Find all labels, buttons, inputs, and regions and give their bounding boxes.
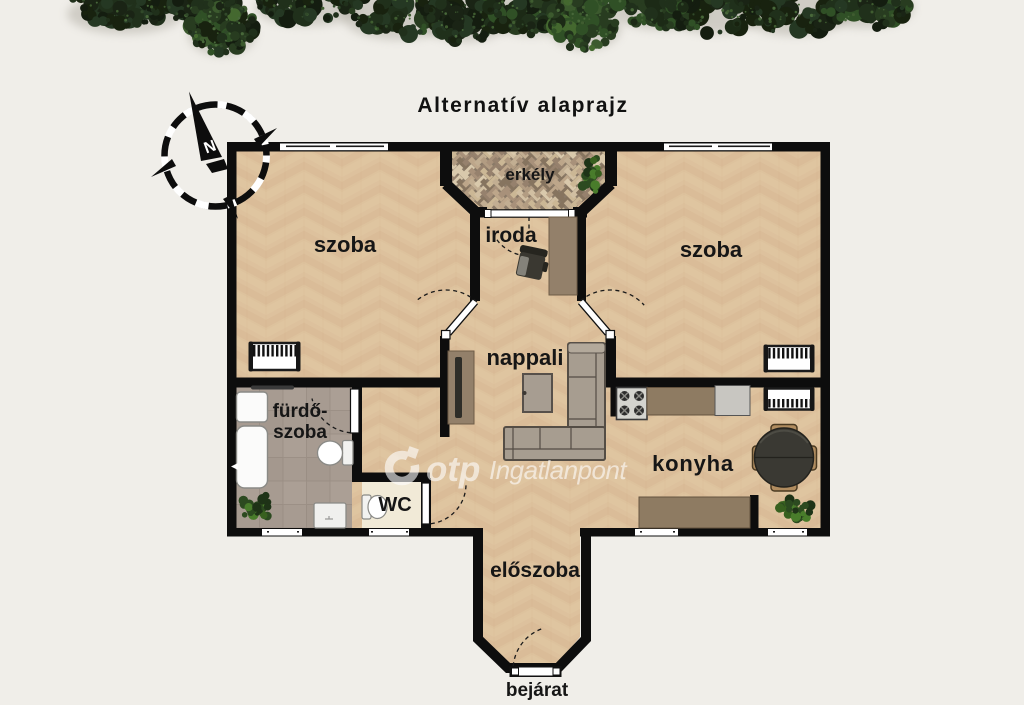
svg-text:WC: WC — [378, 494, 411, 516]
svg-text:iroda: iroda — [485, 224, 537, 247]
svg-text:erkély: erkély — [505, 165, 555, 184]
svg-text:bejárat: bejárat — [506, 680, 569, 701]
svg-text:előszoba: előszoba — [490, 559, 580, 582]
svg-text:szoba: szoba — [680, 237, 743, 262]
svg-text:Alternatív alaprajz: Alternatív alaprajz — [417, 94, 628, 117]
svg-text:Ingatlanpont: Ingatlanpont — [489, 455, 628, 485]
svg-text:otp: otp — [426, 450, 480, 489]
svg-text:fürdő-: fürdő- — [273, 401, 328, 422]
svg-text:nappali: nappali — [486, 345, 563, 370]
svg-text:szoba: szoba — [314, 232, 377, 257]
svg-text:konyha: konyha — [652, 451, 734, 476]
svg-text:szoba: szoba — [273, 422, 327, 443]
